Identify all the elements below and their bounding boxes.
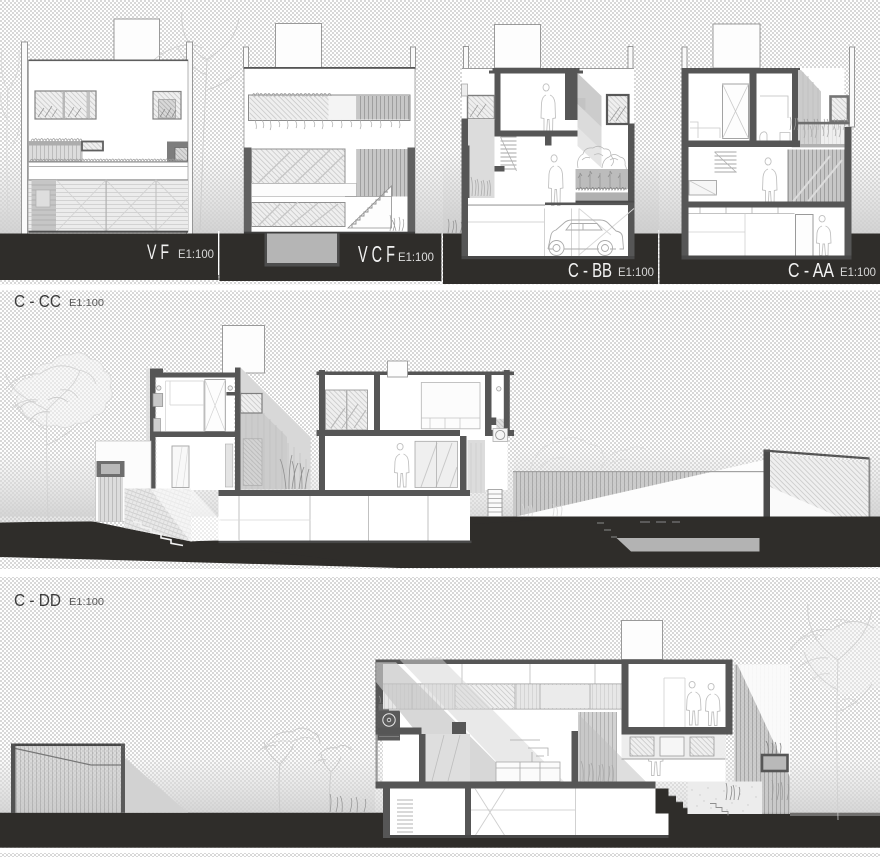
svg-text:C - AA: C - AA xyxy=(788,260,835,282)
svg-text:E1:100: E1:100 xyxy=(840,267,876,279)
svg-text:E1:100: E1:100 xyxy=(398,250,434,264)
svg-text:V F: V F xyxy=(147,241,169,264)
svg-text:E1:100: E1:100 xyxy=(69,298,104,309)
svg-text:E1:100: E1:100 xyxy=(178,249,214,261)
svg-text:C - BB: C - BB xyxy=(568,260,612,282)
svg-text:E1:100: E1:100 xyxy=(618,267,654,279)
svg-text:C - DD: C - DD xyxy=(14,590,61,610)
svg-text:C - CC: C - CC xyxy=(14,291,61,311)
svg-text:E1:100: E1:100 xyxy=(69,597,104,608)
svg-text:V C F: V C F xyxy=(358,241,395,267)
